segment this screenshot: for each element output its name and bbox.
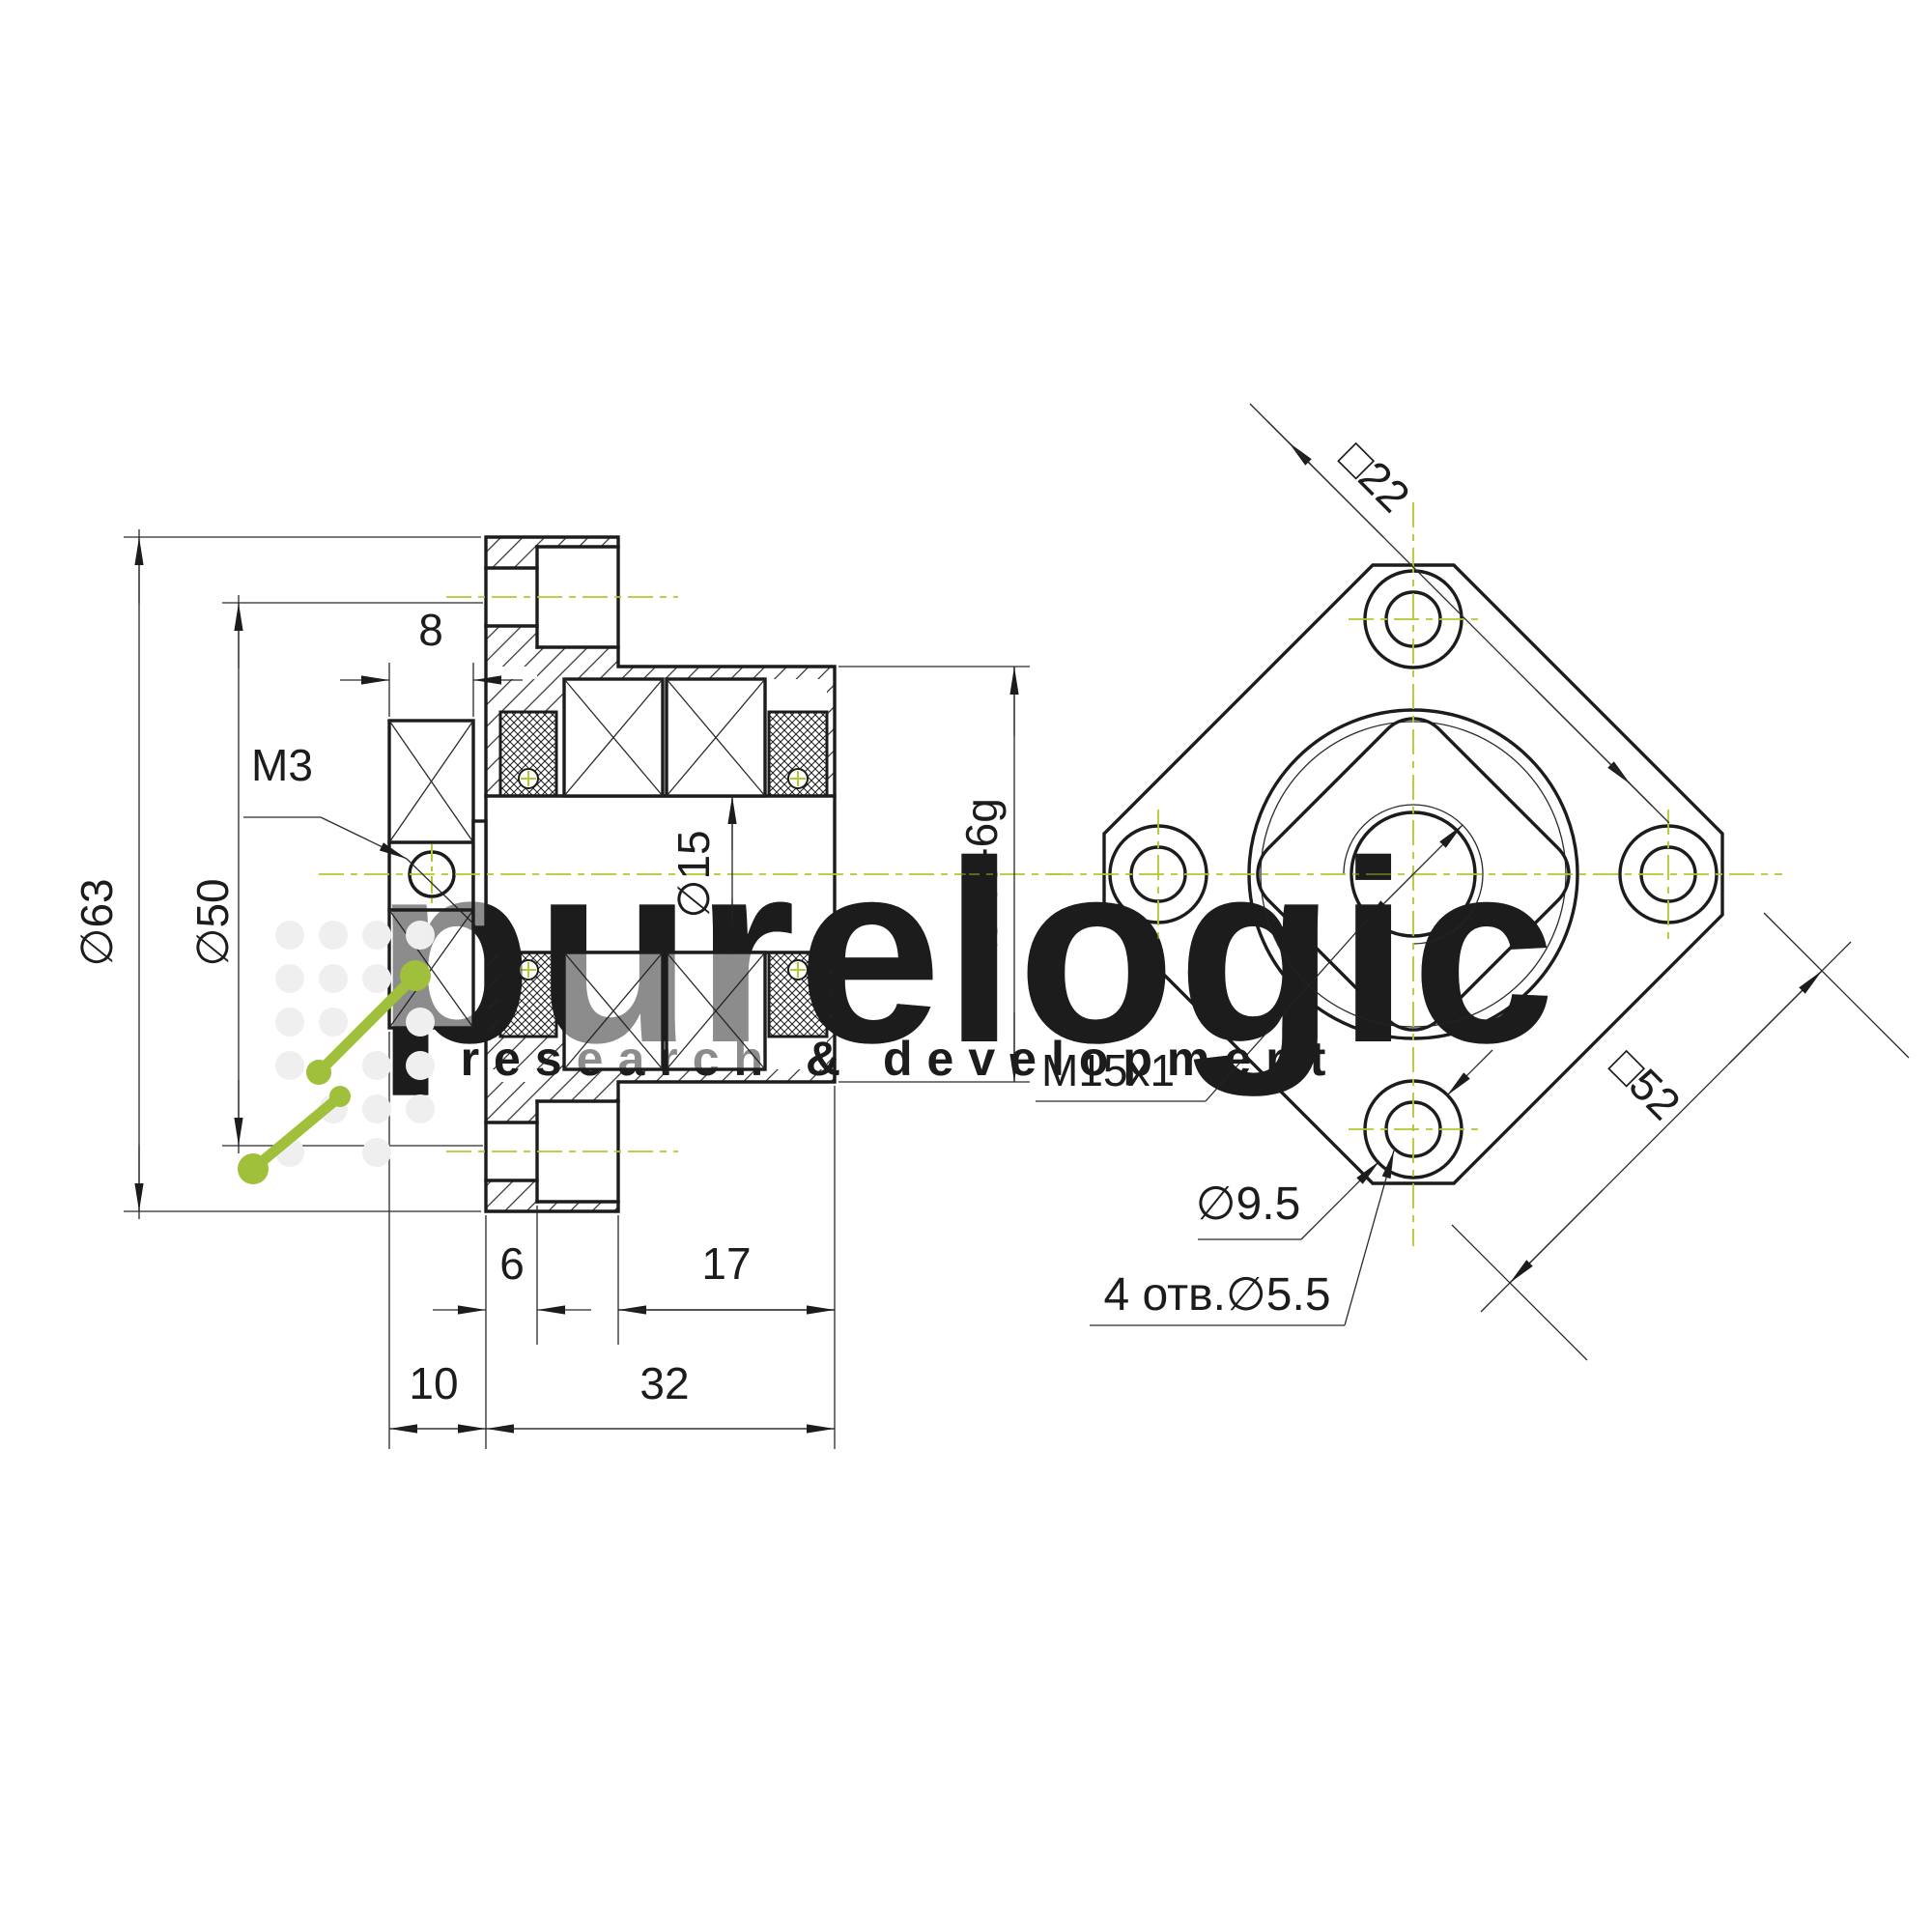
dim-label-6: 6 xyxy=(499,1238,525,1289)
dim-label-17: 17 xyxy=(701,1238,751,1289)
dim-label-dia63: ∅63 xyxy=(71,878,122,966)
watermark-over: purelogic research & development xyxy=(375,807,1557,1098)
dim-label-holes: 4 отв.∅5.5 xyxy=(1103,1269,1330,1321)
callout-holes: 4 отв.∅5.5 xyxy=(1090,1151,1394,1325)
dim-label-dia50: ∅50 xyxy=(187,878,238,966)
dim-label-10: 10 xyxy=(409,1358,458,1408)
watermark-text-small-over: research & development xyxy=(461,1032,1341,1086)
dim-label-32: 32 xyxy=(639,1358,689,1408)
dim-label-m3: M3 xyxy=(251,740,313,790)
dim-label-8: 8 xyxy=(418,605,443,655)
dim-label-sq22: □22 xyxy=(1330,432,1420,522)
dim-sq22: □22 xyxy=(1250,404,1669,823)
engineering-drawing: purelogic research & development xyxy=(0,0,1932,1932)
dim-label-dia95: ∅9.5 xyxy=(1196,1179,1301,1230)
drawing-page: purelogic research & development xyxy=(0,0,1932,1932)
